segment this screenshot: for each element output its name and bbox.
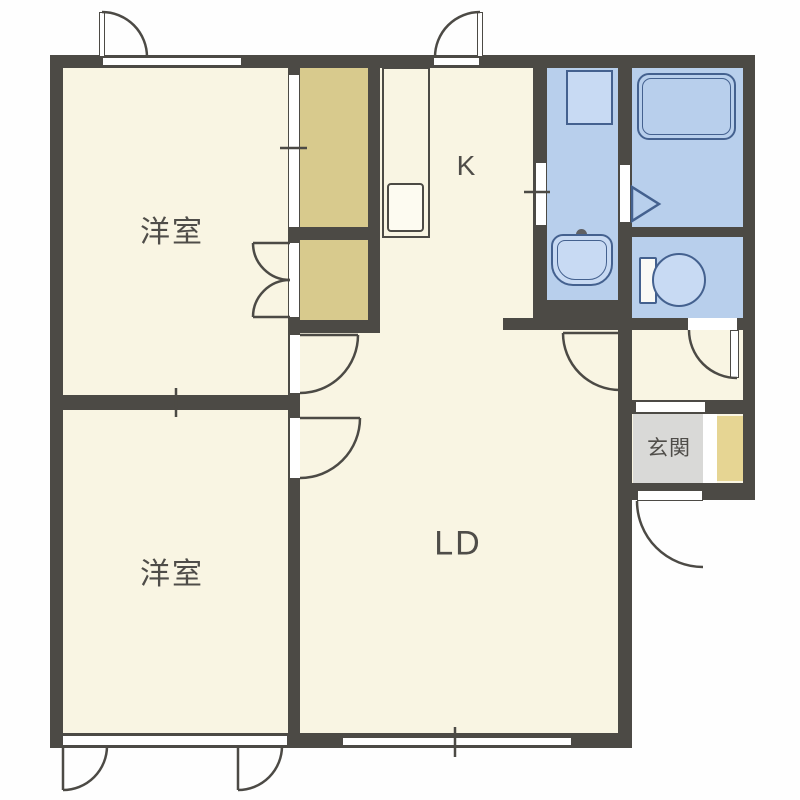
toilet-bowl [652, 253, 706, 307]
genkan-hall-opening [636, 402, 705, 412]
closet-lower [300, 240, 368, 320]
closet-upper [300, 68, 368, 227]
window-bedroom-bottom [62, 735, 288, 746]
door-leaf-toilet [730, 330, 739, 378]
wall-closet-divider [288, 227, 380, 240]
bathtub [637, 73, 736, 140]
bathtub-inner-line [642, 78, 731, 135]
kitchen-sink [387, 183, 424, 232]
window-bedroom-top [102, 57, 242, 66]
wall-outer-right [743, 55, 755, 500]
door-arc-terrace-left [63, 746, 107, 790]
wall-closet-bottom [288, 320, 380, 333]
door-arc-top-kitchen [435, 12, 480, 57]
door-leaf-entrance [637, 490, 703, 501]
bathroom-door-opening [620, 165, 630, 222]
washroom-sliding-door [536, 163, 546, 225]
door-opening-bedroom-top-ld [290, 335, 300, 393]
door-arc-entrance [637, 501, 703, 567]
washing-machine-pan [566, 70, 613, 125]
door-opening-bedroom-bottom-ld [290, 418, 300, 478]
room-label-bedroom-top: 洋室 [140, 207, 204, 251]
wall-bedroom-divider [50, 395, 300, 410]
floor-plan: 洋室 洋室 K LD 玄関 [0, 0, 800, 800]
door-opening-kitchen-top [433, 57, 480, 66]
room-label-living-dining: LD [434, 525, 481, 564]
toilet-door-opening [688, 318, 737, 330]
genkan-step [703, 414, 717, 483]
wall-bath-toilet [618, 227, 755, 237]
washbasin-inner-line [557, 240, 607, 280]
wall-washroom-bottom [533, 300, 618, 318]
room-label-bedroom-bottom: 洋室 [140, 549, 204, 593]
door-leaf-top-left [99, 12, 105, 57]
room-label-entrance: 玄関 [647, 432, 691, 462]
room-label-kitchen: K [457, 150, 478, 182]
closet-sliding-door [289, 75, 299, 227]
door-arc-terrace-right [238, 746, 282, 790]
closet-double-door-opening [289, 243, 299, 317]
washbasin [551, 234, 613, 286]
shoe-cabinet [717, 416, 743, 481]
window-ld [342, 737, 572, 746]
door-arc-top-left [102, 12, 147, 57]
door-leaf-top-kitchen [477, 12, 483, 57]
wall-closet-right [368, 68, 380, 333]
